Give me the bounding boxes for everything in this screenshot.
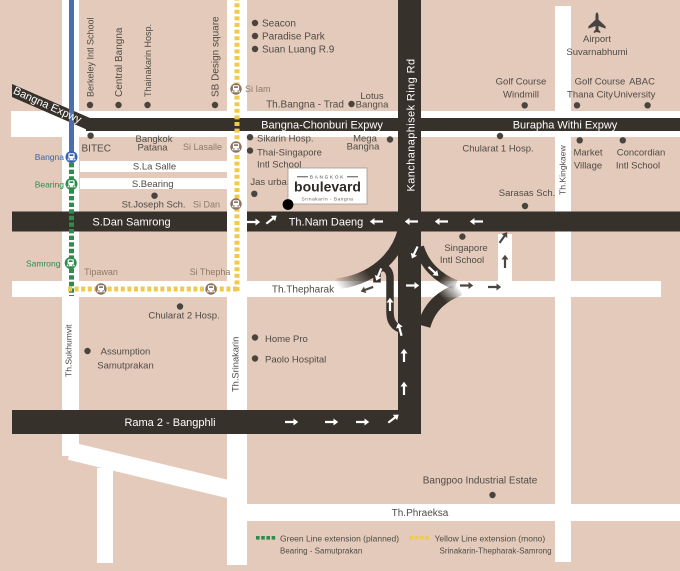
svg-text:S.Bearing: S.Bearing	[132, 179, 174, 190]
svg-text:Bangna: Bangna	[35, 152, 65, 162]
svg-text:Suvarnabhumi: Suvarnabhumi	[566, 47, 627, 58]
svg-text:Thana City: Thana City	[567, 90, 613, 101]
svg-text:Bangpoo Industrial Estate: Bangpoo Industrial Estate	[423, 476, 538, 487]
svg-text:Airport: Airport	[583, 34, 611, 45]
svg-text:Si Dan: Si Dan	[193, 200, 220, 210]
svg-text:Berkeley Intl School: Berkeley Intl School	[86, 17, 96, 97]
svg-text:Concordian: Concordian	[617, 148, 666, 159]
svg-text:Bangna: Bangna	[356, 100, 389, 111]
svg-text:Bearing - Samutprakan: Bearing - Samutprakan	[280, 547, 362, 556]
svg-text:Bearing: Bearing	[35, 180, 65, 190]
svg-text:Suan Luang R.9: Suan Luang R.9	[262, 45, 335, 56]
svg-text:Th.Kingkaew: Th.Kingkaew	[558, 145, 568, 195]
svg-text:S.Dan Samrong: S.Dan Samrong	[92, 217, 170, 229]
svg-text:Market: Market	[573, 148, 602, 159]
svg-text:Tipawan: Tipawan	[84, 267, 118, 277]
svg-text:Chularat 2 Hosp.: Chularat 2 Hosp.	[148, 311, 219, 322]
svg-text:Thai-Singapore: Thai-Singapore	[257, 148, 322, 159]
svg-text:Assumption: Assumption	[101, 347, 151, 358]
svg-text:Chularat 1 Hosp.: Chularat 1 Hosp.	[462, 144, 533, 155]
svg-text:Sarasas Sch.: Sarasas Sch.	[499, 188, 556, 199]
svg-text:Central Bangna: Central Bangna	[114, 27, 125, 97]
svg-text:Srinakarin - Bangna: Srinakarin - Bangna	[302, 197, 354, 203]
svg-text:University: University	[614, 90, 656, 101]
svg-text:Jas urban: Jas urban	[250, 177, 292, 188]
svg-text:Th.Srinakarin: Th.Srinakarin	[231, 337, 241, 392]
svg-text:Paolo Hospital: Paolo Hospital	[265, 355, 326, 366]
svg-text:Windmill: Windmill	[503, 90, 539, 101]
svg-text:Thainakarin Hosp.: Thainakarin Hosp.	[143, 24, 153, 97]
svg-text:Bangna: Bangna	[347, 142, 380, 153]
svg-text:Th.Nam Daeng: Th.Nam Daeng	[289, 217, 364, 229]
svg-text:Kanchanaphisek Ring Rd: Kanchanaphisek Ring Rd	[406, 59, 418, 192]
svg-text:Green Line extension (planned): Green Line extension (planned)	[280, 534, 399, 544]
svg-text:Golf Course: Golf Course	[496, 77, 547, 88]
svg-text:BITEC: BITEC	[82, 144, 111, 155]
svg-text:Patana: Patana	[137, 143, 168, 154]
svg-text:Paradise Park: Paradise Park	[262, 32, 326, 43]
svg-text:Intl School: Intl School	[440, 255, 484, 266]
svg-text:Th.Sukhumvit: Th.Sukhumvit	[64, 324, 74, 377]
svg-text:Si Thepha: Si Thepha	[190, 267, 231, 277]
svg-text:Home Pro: Home Pro	[265, 334, 308, 345]
svg-text:Th.Thepharak: Th.Thepharak	[272, 285, 335, 296]
svg-text:Sikarin Hosp.: Sikarin Hosp.	[257, 134, 314, 145]
svg-text:Rama 2 - Bangphli: Rama 2 - Bangphli	[124, 417, 215, 429]
svg-text:Si Iam: Si Iam	[245, 84, 271, 94]
svg-text:St.Joseph Sch.: St.Joseph Sch.	[122, 200, 186, 211]
svg-text:Si Lasalle: Si Lasalle	[183, 142, 222, 152]
svg-text:Village: Village	[574, 161, 602, 172]
svg-text:Srinakarin-Thepharak-Samrong: Srinakarin-Thepharak-Samrong	[440, 547, 552, 556]
svg-text:boulevard: boulevard	[294, 179, 361, 195]
svg-text:Intl School: Intl School	[616, 161, 660, 172]
svg-text:Golf Course: Golf Course	[575, 77, 626, 88]
svg-text:SB Design square: SB Design square	[211, 16, 222, 97]
svg-text:Singapore: Singapore	[444, 243, 487, 254]
svg-text:Th.Phraeksa: Th.Phraeksa	[392, 508, 449, 519]
svg-text:Yellow Line extension (mono): Yellow Line extension (mono)	[435, 534, 546, 544]
svg-text:S.La Salle: S.La Salle	[133, 162, 176, 173]
svg-text:Burapha Withi Expwy: Burapha Withi Expwy	[513, 120, 618, 132]
svg-text:Seacon: Seacon	[262, 19, 296, 30]
svg-text:Bangna-Chonburi Expwy: Bangna-Chonburi Expwy	[261, 119, 383, 131]
svg-text:Th.Bangna - Trad: Th.Bangna - Trad	[266, 100, 344, 111]
svg-text:Samrong: Samrong	[26, 259, 61, 269]
svg-text:Samutprakan: Samutprakan	[97, 361, 154, 372]
svg-text:ABAC: ABAC	[629, 77, 655, 88]
